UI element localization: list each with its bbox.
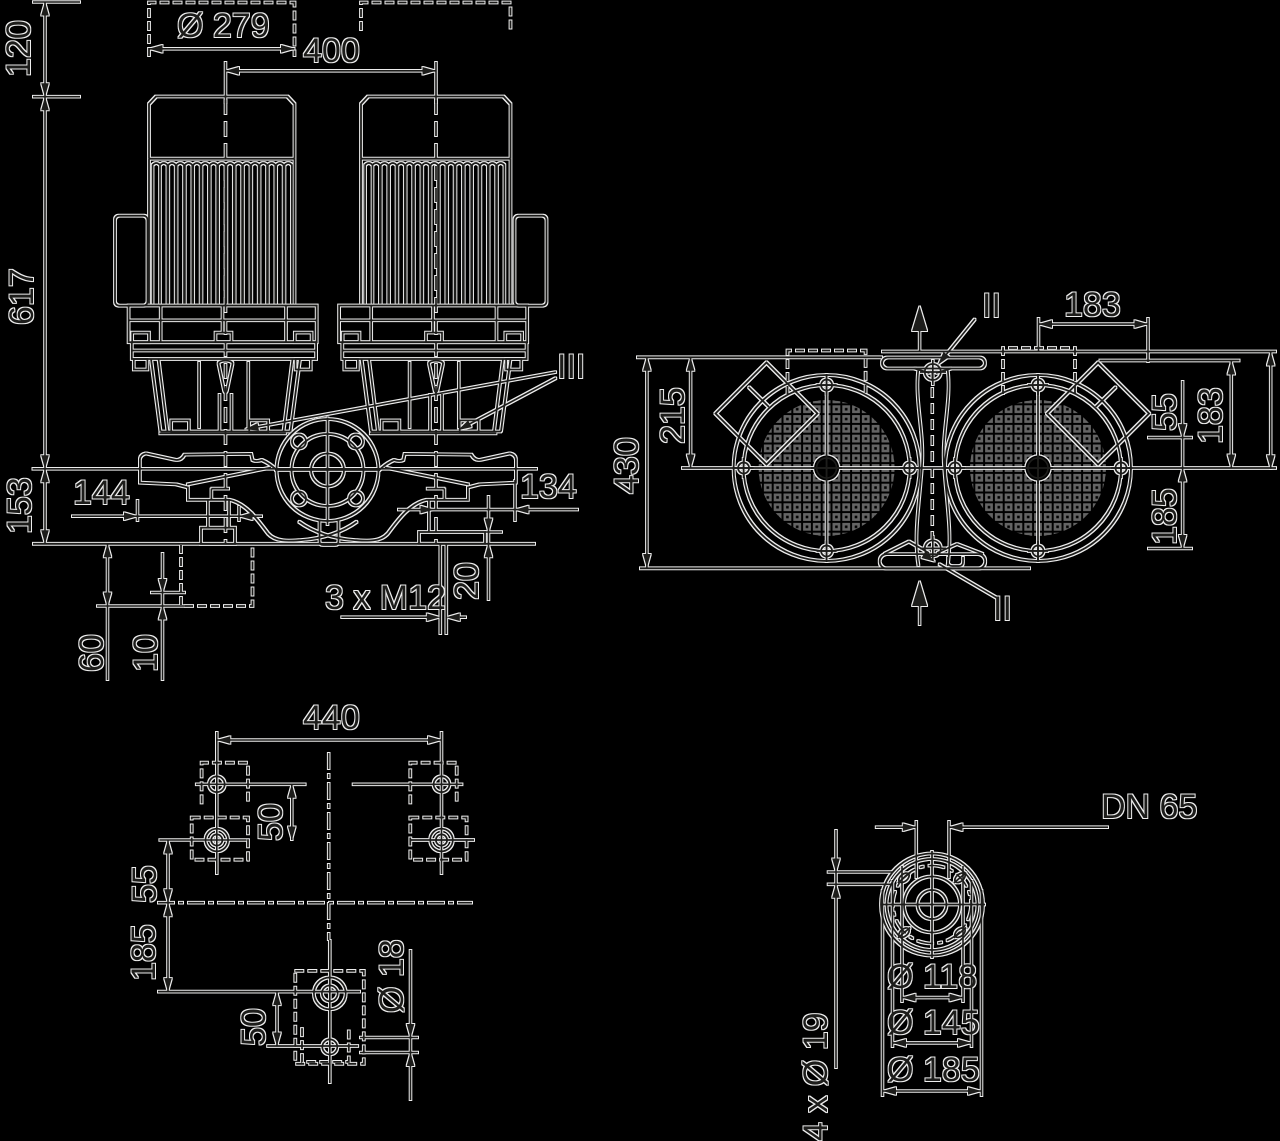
svg-text:4 x Ø 19: 4 x Ø 19	[797, 1012, 835, 1141]
svg-text:183: 183	[1064, 286, 1121, 324]
svg-text:153: 153	[1, 477, 39, 534]
svg-text:50: 50	[252, 803, 290, 841]
svg-text:400: 400	[303, 32, 360, 70]
svg-text:430: 430	[608, 437, 646, 494]
svg-text:Ø 18: Ø 18	[373, 939, 411, 1013]
svg-text:215: 215	[654, 387, 692, 444]
svg-text:III: III	[557, 348, 585, 386]
svg-text:185: 185	[1146, 488, 1184, 545]
svg-text:Ø 145: Ø 145	[887, 1004, 980, 1042]
svg-text:144: 144	[73, 474, 130, 512]
svg-text:134: 134	[520, 468, 577, 506]
svg-text:II: II	[982, 287, 1001, 325]
svg-text:617: 617	[3, 268, 41, 325]
svg-text:120: 120	[0, 20, 38, 77]
svg-text:20: 20	[448, 562, 486, 600]
svg-text:60: 60	[73, 634, 111, 672]
svg-text:50: 50	[235, 1008, 273, 1046]
svg-text:183: 183	[1192, 387, 1230, 444]
svg-text:55: 55	[1146, 393, 1184, 431]
svg-text:3 x M12: 3 x M12	[325, 579, 446, 617]
svg-text:185: 185	[125, 924, 163, 981]
svg-text:DN 65: DN 65	[1101, 788, 1197, 826]
svg-text:440: 440	[303, 699, 360, 737]
svg-text:II: II	[993, 590, 1012, 628]
svg-text:Ø 185: Ø 185	[887, 1051, 980, 1089]
svg-text:55: 55	[126, 865, 164, 903]
svg-text:Ø 279: Ø 279	[177, 7, 270, 45]
svg-text:Ø 118: Ø 118	[887, 958, 977, 996]
svg-text:10: 10	[127, 634, 165, 672]
